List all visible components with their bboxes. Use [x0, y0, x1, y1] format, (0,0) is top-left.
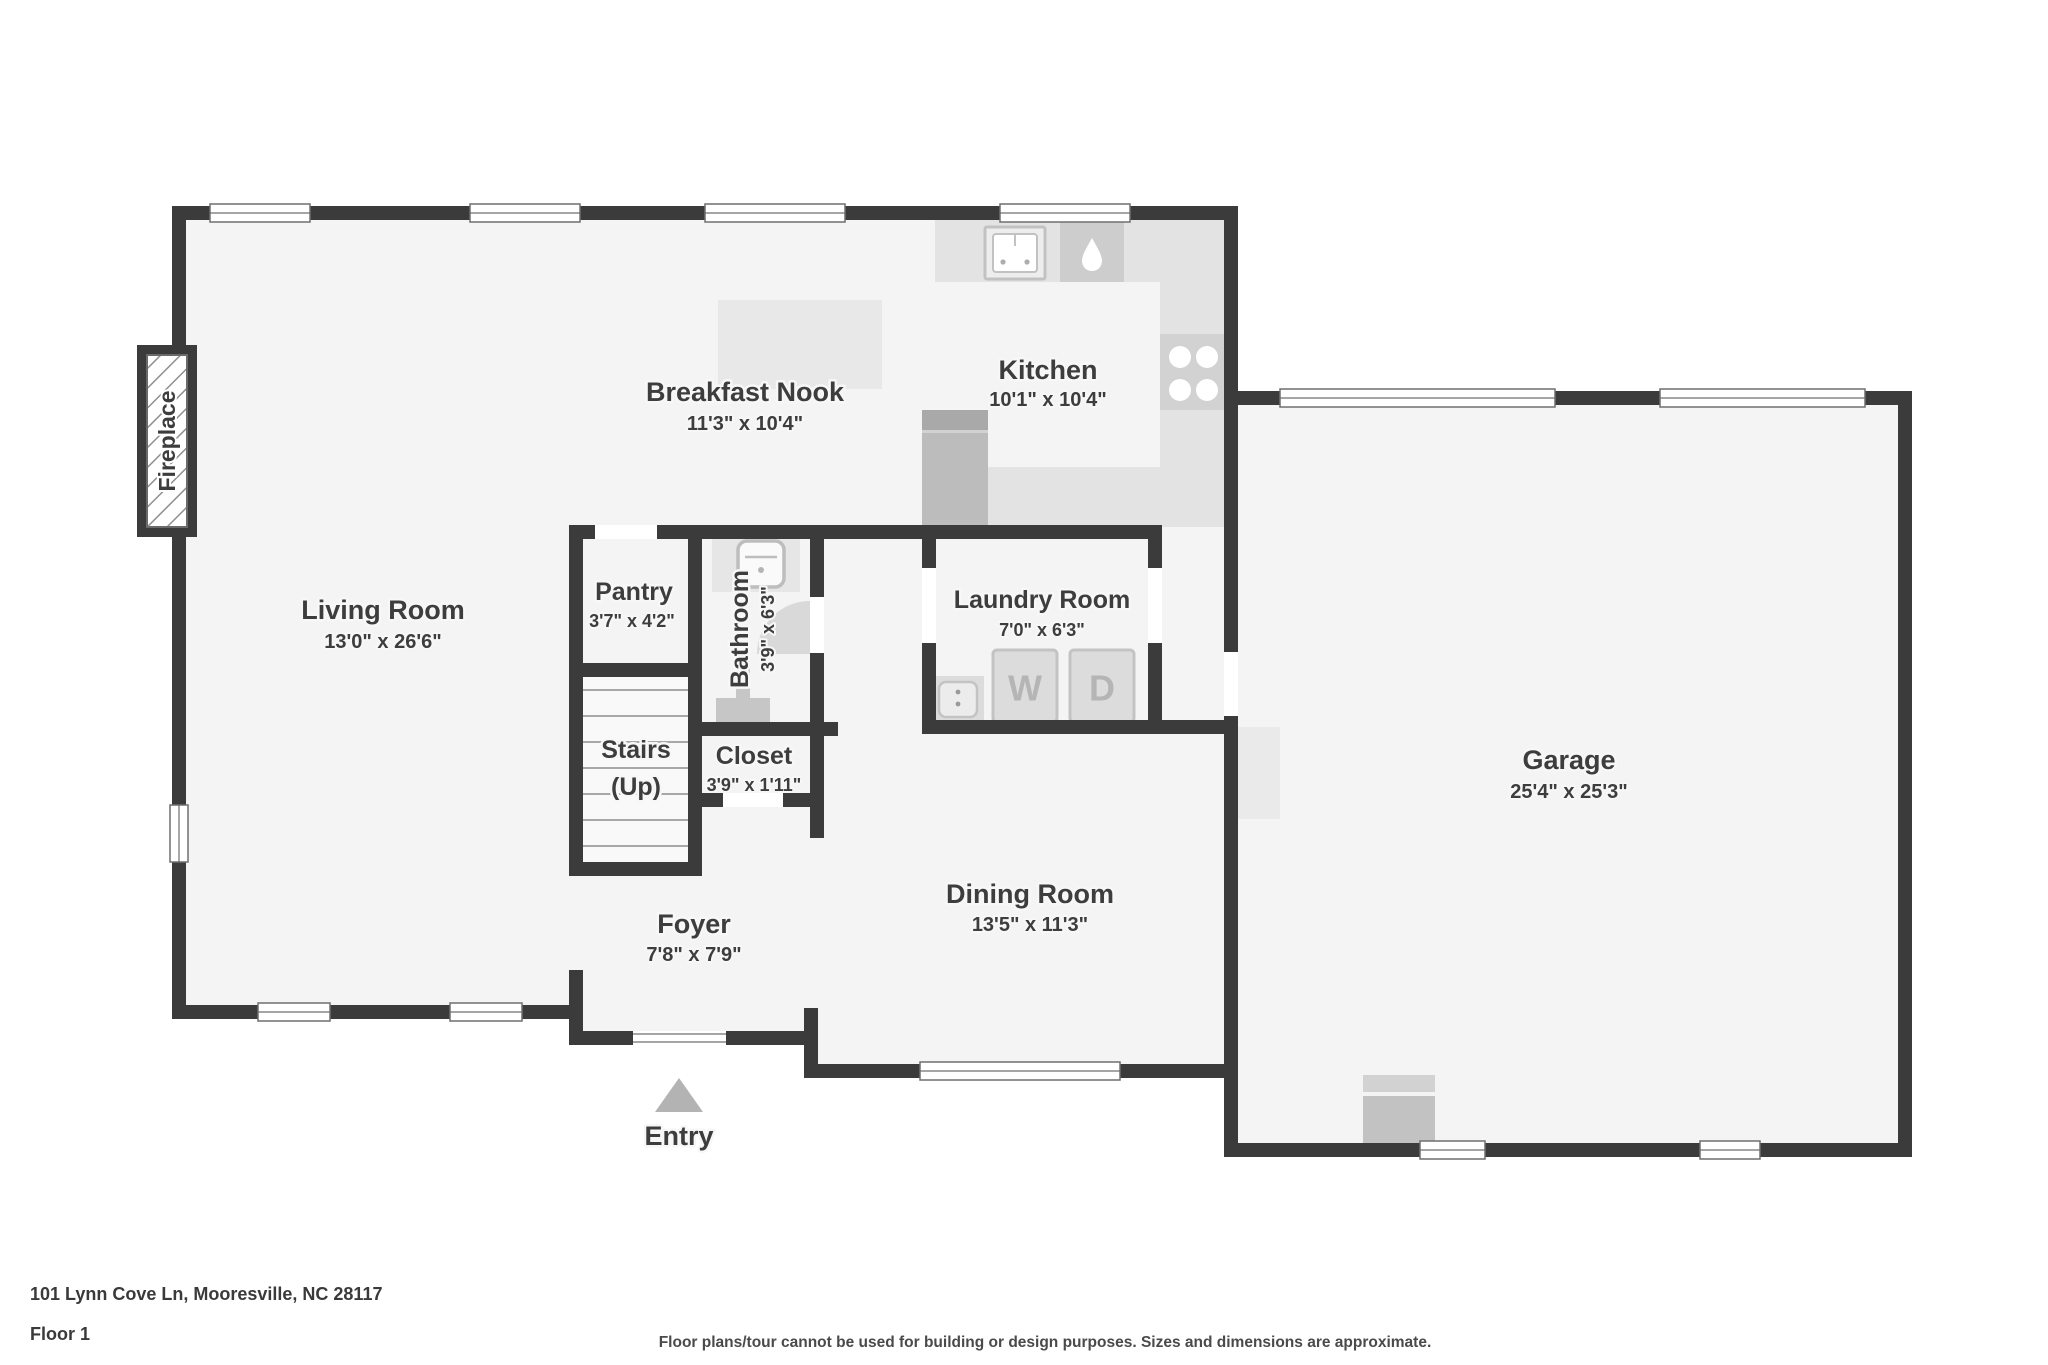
window-top-2: [470, 204, 580, 222]
footer-address: 101 Lynn Cove Ln, Mooresville, NC 28117: [30, 1284, 382, 1304]
garage-door-mat: [1238, 727, 1280, 819]
dims-living-room: 13'0" x 26'6": [324, 631, 441, 653]
window-garage-top-2: [1660, 389, 1865, 407]
garage-furnace: [1363, 1075, 1435, 1143]
garage-entry-door: [1224, 652, 1238, 716]
footer: 101 Lynn Cove Ln, Mooresville, NC 28117 …: [30, 1284, 1431, 1351]
label-dining-room: Dining Room: [946, 879, 1114, 909]
window-dining: [920, 1062, 1120, 1080]
label-stairs-line1: Stairs: [601, 736, 670, 764]
label-laundry-room: Laundry Room: [954, 586, 1130, 614]
label-living-room: Living Room: [301, 595, 465, 625]
label-garage: Garage: [1522, 745, 1615, 775]
wall-kitchen-bottom: [569, 525, 1162, 539]
window-garage-bottom-2: [1700, 1141, 1760, 1159]
wall-stairs-right: [688, 663, 702, 876]
label-kitchen: Kitchen: [998, 355, 1097, 385]
window-garage-bottom-1: [1420, 1141, 1485, 1159]
dims-foyer: 7'8" x 7'9": [646, 944, 741, 966]
label-bathroom: Bathroom: [726, 570, 754, 688]
kitchen-sink: [985, 227, 1045, 279]
dryer-letter: D: [1089, 668, 1115, 709]
entry-marker: Entry: [644, 1078, 713, 1151]
label-pantry: Pantry: [595, 578, 673, 606]
kitchen-counter-bottom: [988, 467, 1224, 527]
window-top-1: [210, 204, 310, 222]
label-stairs-line2: (Up): [611, 773, 661, 801]
footer-floor: Floor 1: [30, 1324, 90, 1344]
footer-disclaimer: Floor plans/tour cannot be used for buil…: [659, 1334, 1432, 1351]
dims-closet: 3'9" x 1'11": [707, 775, 802, 795]
breakfast-table: [718, 300, 882, 389]
dims-bathroom: 3'9" x 6'3": [758, 586, 778, 672]
entry-opening: [626, 1031, 733, 1045]
dims-pantry: 3'7" x 4'2": [589, 611, 675, 631]
label-foyer: Foyer: [657, 909, 731, 939]
dims-breakfast-nook: 11'3" x 10'4": [687, 413, 803, 435]
dryer: D: [1070, 650, 1134, 722]
window-top-4: [1000, 204, 1130, 222]
laundry-door-west: [922, 568, 936, 643]
wall-pantry-stairs-left: [569, 525, 583, 876]
stairs-treads: [583, 677, 688, 862]
wall-exterior-left: [172, 206, 186, 1019]
washer: W: [993, 650, 1057, 722]
bathroom-door: [810, 597, 824, 653]
window-living-1: [258, 1003, 330, 1021]
wall-garage-right: [1898, 391, 1912, 1157]
laundry-door-east: [1148, 568, 1162, 643]
window-top-3: [705, 204, 845, 222]
entry-arrow-icon: [655, 1078, 703, 1112]
fireplace: Fireplace: [137, 345, 197, 537]
wall-bath-closet-right: [810, 525, 824, 838]
laundry-sink: [932, 676, 984, 723]
kitchen-dishwasher: [1060, 222, 1124, 282]
closet-door: [723, 793, 783, 807]
wall-pantry-right: [688, 525, 702, 677]
window-living-2: [450, 1003, 522, 1021]
pantry-door: [595, 525, 657, 539]
washer-letter: W: [1008, 668, 1042, 709]
entry-label: Entry: [644, 1121, 713, 1151]
window-left-wall: [170, 805, 188, 862]
kitchen-refrigerator: [922, 410, 988, 527]
wall-bath-bottom: [688, 722, 838, 736]
window-garage-top-1: [1280, 389, 1555, 407]
wall-stairs-bottom: [569, 862, 702, 876]
fireplace-label: Fireplace: [154, 391, 180, 492]
dims-dining-room: 13'5" x 11'3": [972, 914, 1088, 936]
kitchen-stove: [1160, 334, 1224, 410]
floor-plan-canvas: W D: [0, 0, 2048, 1365]
dims-garage: 25'4" x 25'3": [1510, 781, 1627, 803]
dims-laundry-room: 7'0" x 6'3": [999, 620, 1085, 640]
wall-garage-bottom: [1231, 1143, 1912, 1157]
wall-hall-dining: [922, 720, 1238, 734]
label-breakfast-nook: Breakfast Nook: [646, 377, 845, 407]
wall-pantry-bottom: [569, 663, 702, 677]
label-closet: Closet: [716, 742, 793, 770]
dims-kitchen: 10'1" x 10'4": [989, 389, 1106, 411]
floor-plan-page: W D: [0, 0, 2048, 1365]
